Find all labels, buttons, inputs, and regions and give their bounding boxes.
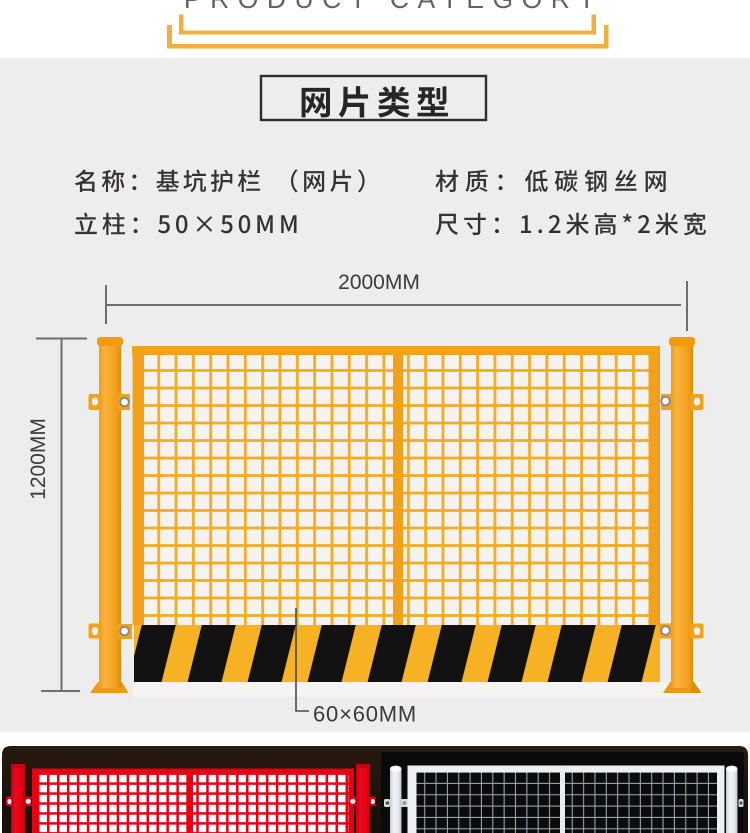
svg-text:2000MM: 2000MM (338, 271, 420, 294)
svg-text:60×60MM: 60×60MM (313, 702, 417, 727)
svg-text:1200MM: 1200MM (27, 418, 50, 500)
svg-text:PRODUCT CATEGORY: PRODUCT CATEGORY (184, 0, 604, 14)
